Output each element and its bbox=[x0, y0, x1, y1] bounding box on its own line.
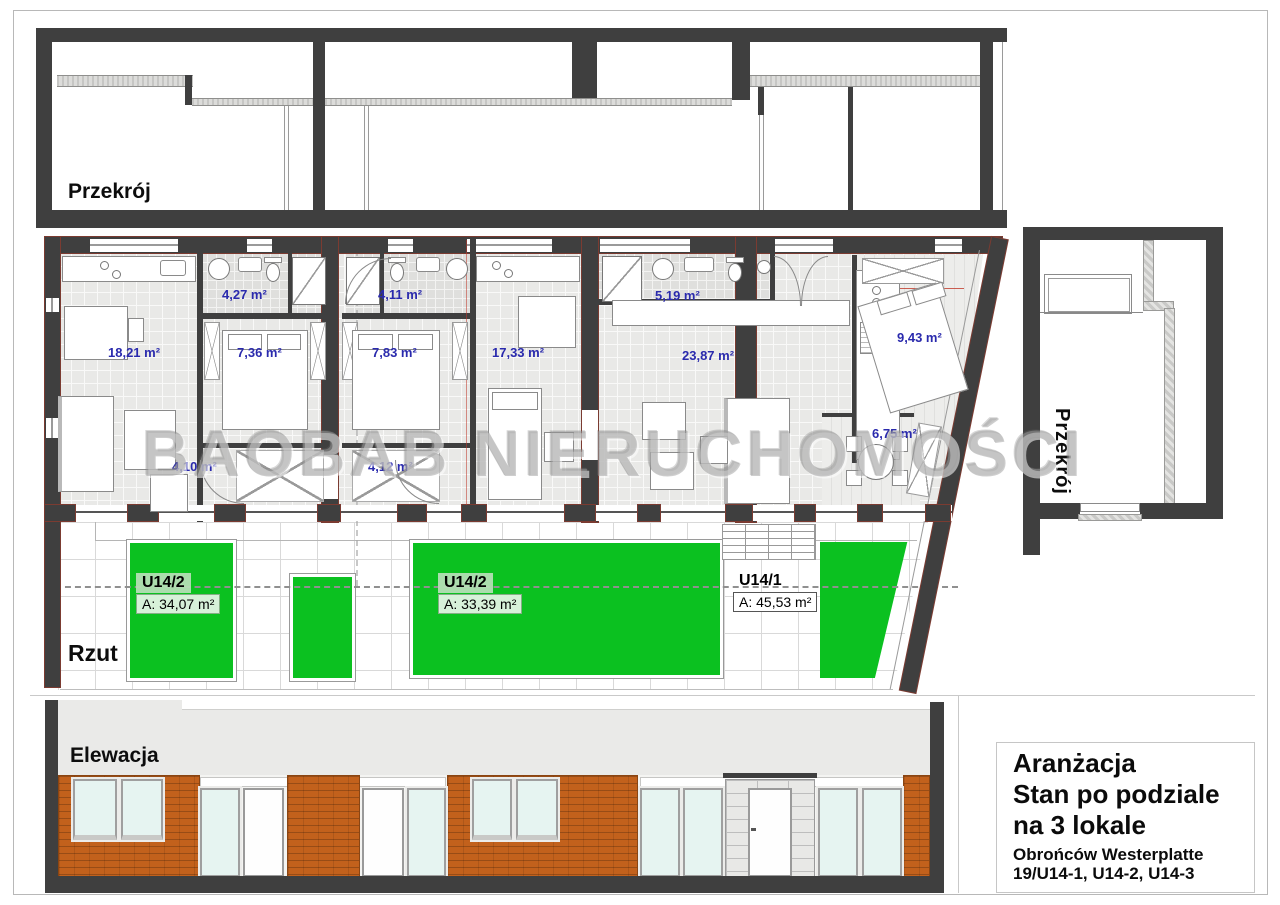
rsection-top-bar bbox=[1023, 227, 1223, 240]
elevation-left-column bbox=[45, 700, 58, 893]
rsection-insulated-wall bbox=[1143, 240, 1154, 306]
unit-name-label: U14/2 bbox=[136, 573, 191, 593]
elevation-upper-band bbox=[58, 700, 930, 778]
room-area-label: 5,19 m² bbox=[655, 288, 700, 303]
patio-green bbox=[293, 577, 352, 678]
door-handle bbox=[751, 828, 756, 831]
sheet-divider bbox=[30, 695, 1255, 696]
elevation-right-column bbox=[930, 702, 944, 893]
toilet-bowl bbox=[266, 263, 280, 282]
wall-pier bbox=[462, 505, 486, 521]
shower bbox=[602, 256, 642, 302]
elevation-glazing bbox=[818, 788, 858, 877]
elevation-window bbox=[73, 779, 117, 840]
washbasin bbox=[416, 257, 440, 272]
brick-pier bbox=[287, 775, 360, 877]
title-line-1: Aranżacja bbox=[1013, 748, 1136, 779]
elevation-window bbox=[121, 779, 163, 840]
wall-pier bbox=[858, 505, 882, 521]
hob-burner bbox=[504, 269, 513, 278]
elevation-window bbox=[472, 779, 512, 840]
room-area-label: 4,27 m² bbox=[222, 287, 267, 302]
hob-burner bbox=[492, 261, 501, 270]
elevation-glazing bbox=[683, 788, 723, 877]
section-pier bbox=[999, 210, 1007, 228]
plan-window bbox=[90, 239, 178, 252]
wall-pier bbox=[398, 505, 426, 521]
section-window bbox=[284, 106, 289, 210]
rsection-wall bbox=[1023, 227, 1040, 555]
title-line-3: na 3 lokale bbox=[1013, 810, 1146, 841]
washing-machine bbox=[652, 258, 674, 280]
kitchen-counter bbox=[476, 256, 580, 282]
section-wall bbox=[758, 87, 764, 115]
pillow bbox=[492, 392, 538, 410]
rsection-floor bbox=[1140, 503, 1206, 519]
wall-pier bbox=[45, 505, 75, 521]
rsection-radiator bbox=[1078, 514, 1142, 521]
rsection-sill bbox=[1080, 503, 1140, 512]
section-wall bbox=[848, 87, 853, 210]
elevation-glazing bbox=[862, 788, 902, 877]
section-pier-line bbox=[1002, 42, 1003, 210]
wall-pier bbox=[318, 505, 340, 521]
drawing-sheet: Przekrój bbox=[0, 0, 1280, 905]
section-ceiling-slab bbox=[57, 75, 193, 87]
wardrobe bbox=[452, 322, 468, 380]
elevation-glazing bbox=[640, 788, 680, 877]
wall-pier bbox=[638, 505, 660, 521]
plan-window bbox=[388, 239, 413, 252]
elevation-lintel bbox=[723, 773, 817, 778]
elevation-ground bbox=[45, 876, 944, 893]
sofa bbox=[58, 396, 114, 492]
kitchen-sink bbox=[160, 260, 186, 276]
section-wall bbox=[36, 28, 52, 228]
elevation-door bbox=[243, 788, 284, 877]
toilet-bowl bbox=[390, 263, 404, 282]
section-wall bbox=[313, 42, 325, 210]
section-door bbox=[759, 115, 764, 210]
title-line-2: Stan po podziale bbox=[1013, 779, 1220, 810]
terrace-stairs bbox=[722, 524, 816, 560]
section-wall bbox=[732, 42, 750, 100]
plan-window bbox=[467, 239, 552, 252]
plan-window bbox=[247, 239, 272, 252]
hob-burner bbox=[872, 286, 881, 295]
plan-entry-door bbox=[770, 239, 833, 252]
unit-name-label: U14/2 bbox=[438, 573, 493, 593]
section-floor-slab bbox=[750, 75, 980, 87]
section-floor-slab bbox=[192, 98, 313, 106]
title-line-4: Obrońców Westerplatte bbox=[1013, 845, 1204, 865]
washbasin bbox=[684, 257, 714, 272]
section-window bbox=[364, 106, 369, 210]
interior-wall bbox=[342, 313, 470, 319]
unit-area-label: A: 33,39 m² bbox=[438, 594, 522, 614]
wardrobe bbox=[862, 258, 944, 284]
wall-pier bbox=[726, 505, 752, 521]
wall-pier bbox=[215, 505, 245, 521]
room-area-label: 17,33 m² bbox=[492, 345, 544, 360]
interior-wall bbox=[197, 313, 330, 319]
elevation-window bbox=[516, 779, 558, 840]
room-area-label: 7,36 m² bbox=[237, 345, 282, 360]
brick-pier bbox=[903, 775, 930, 877]
room-area-label: 7,83 m² bbox=[372, 345, 417, 360]
elevation-main-door bbox=[748, 788, 792, 877]
section-wall bbox=[572, 42, 597, 98]
wardrobe bbox=[310, 322, 326, 380]
hob-burner bbox=[100, 261, 109, 270]
top-section-label: Przekrój bbox=[68, 180, 151, 204]
section-top-bar bbox=[48, 28, 1005, 42]
unit-area-label: A: 34,07 m² bbox=[136, 594, 220, 614]
chair bbox=[128, 318, 144, 342]
room-area-label: 18,21 m² bbox=[108, 345, 160, 360]
wall-pier bbox=[565, 505, 595, 521]
wall-pier bbox=[926, 505, 950, 521]
rsection-ceiling-line bbox=[1040, 312, 1143, 313]
unit-name-label: U14/1 bbox=[733, 571, 788, 591]
section-wall bbox=[980, 28, 993, 228]
corner-basin bbox=[757, 260, 771, 274]
room-area-label: 4,11 m² bbox=[378, 287, 422, 302]
sheet-divider bbox=[958, 695, 959, 893]
dining-table bbox=[518, 296, 576, 348]
wardrobe bbox=[204, 322, 220, 380]
plan-window bbox=[46, 298, 59, 312]
washbasin bbox=[238, 257, 262, 272]
title-line-5: 19/U14-1, U14-2, U14-3 bbox=[1013, 864, 1194, 884]
section-wall bbox=[185, 75, 192, 105]
plan-window bbox=[935, 239, 962, 252]
rsection-notch bbox=[1040, 537, 1046, 555]
wall-pier bbox=[795, 505, 815, 521]
rsection-wall bbox=[1206, 227, 1223, 519]
washing-machine bbox=[446, 258, 468, 280]
room-area-label: 23,87 m² bbox=[682, 348, 734, 363]
toilet-bowl bbox=[728, 263, 742, 282]
washing-machine bbox=[208, 258, 230, 280]
plan-label: Rzut bbox=[68, 640, 118, 667]
terrace-walk-line bbox=[95, 522, 96, 540]
elevation-glazing bbox=[200, 788, 240, 877]
rsection-window-inner bbox=[1048, 278, 1130, 312]
watermark-text: BAOBAB NIERUCHOMOŚCI bbox=[142, 416, 1152, 491]
elevation-upper-notch bbox=[182, 700, 930, 710]
terrace-edge-line bbox=[60, 689, 893, 690]
section-bottom-bar bbox=[36, 210, 1007, 228]
hob-burner bbox=[112, 270, 121, 279]
section-floor-slab bbox=[325, 98, 732, 106]
shower bbox=[292, 257, 326, 305]
elevation-label: Elewacja bbox=[70, 744, 159, 768]
rsection-insulated-wall bbox=[1164, 308, 1175, 504]
unit-area-label: A: 45,53 m² bbox=[733, 592, 817, 612]
plan-window bbox=[600, 239, 690, 252]
section-pier bbox=[999, 28, 1007, 42]
elevation-door bbox=[362, 788, 404, 877]
elevation-glazing bbox=[407, 788, 446, 877]
room-area-label: 9,43 m² bbox=[897, 330, 942, 345]
